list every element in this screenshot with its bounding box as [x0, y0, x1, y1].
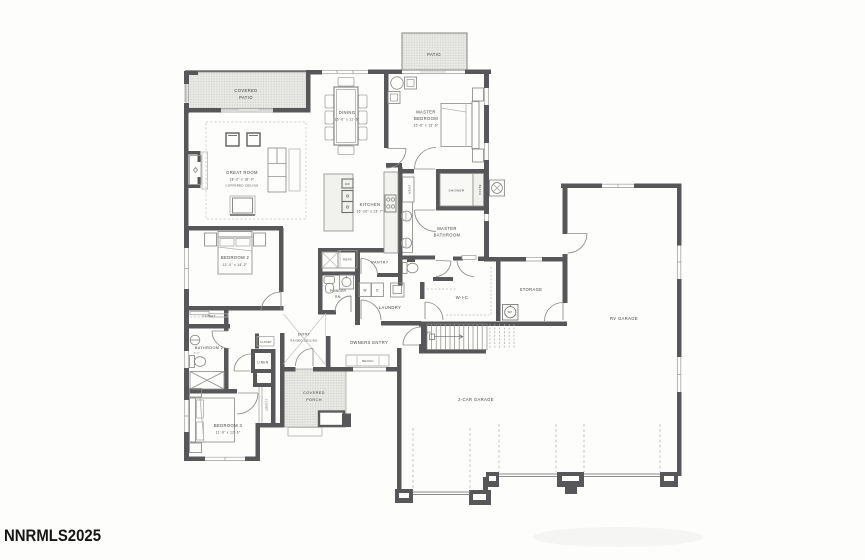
svg-text:PATIO: PATIO	[239, 95, 253, 100]
svg-text:RAISED CEILING: RAISED CEILING	[290, 339, 317, 343]
svg-text:11'-6" x 12'-6": 11'-6" x 12'-6"	[216, 431, 241, 435]
svg-text:PATIO: PATIO	[427, 52, 441, 57]
svg-text:DINING: DINING	[339, 110, 356, 115]
svg-text:MASTER: MASTER	[416, 110, 436, 115]
svg-text:KITCHEN: KITCHEN	[360, 202, 381, 207]
svg-text:W: W	[363, 289, 366, 293]
svg-text:18'-2" x 18'-0": 18'-2" x 18'-0"	[230, 178, 255, 182]
svg-text:ENTRY: ENTRY	[298, 333, 311, 337]
svg-text:CLOSET: CLOSET	[202, 314, 215, 318]
svg-text:LINEN: LINEN	[408, 185, 412, 194]
svg-text:D: D	[376, 289, 379, 293]
svg-text:RV GARAGE: RV GARAGE	[610, 316, 638, 321]
svg-text:COVERED: COVERED	[303, 390, 325, 395]
svg-text:BATHROOM 2: BATHROOM 2	[195, 346, 223, 350]
svg-text:PANTRY: PANTRY	[371, 261, 388, 265]
svg-text:15'-6" x 13'-6": 15'-6" x 13'-6"	[414, 124, 439, 128]
svg-text:CLOSET: CLOSET	[260, 341, 272, 344]
svg-text:W-I-C: W-I-C	[456, 295, 469, 300]
svg-text:COVERED: COVERED	[234, 88, 257, 93]
svg-text:12'-0" x 14'-2": 12'-0" x 14'-2"	[223, 263, 248, 267]
svg-text:PORCH: PORCH	[306, 397, 322, 402]
svg-text:CLOSET: CLOSET	[265, 399, 269, 412]
svg-text:GREAT ROOM: GREAT ROOM	[226, 170, 258, 175]
svg-text:LAUNDRY: LAUNDRY	[379, 305, 401, 310]
svg-text:SHOWER: SHOWER	[448, 189, 464, 193]
svg-text:LINEN: LINEN	[257, 361, 268, 365]
svg-text:2-CAR GARAGE: 2-CAR GARAGE	[458, 397, 494, 402]
svg-text:15'-6" x 11'-6": 15'-6" x 11'-6"	[335, 118, 360, 122]
svg-text:REFR: REFR	[343, 258, 352, 262]
svg-text:BENCH: BENCH	[478, 185, 482, 196]
svg-text:BEDROOM 2: BEDROOM 2	[221, 255, 250, 260]
svg-text:BENCH: BENCH	[362, 359, 374, 363]
svg-text:BEDROOM: BEDROOM	[414, 116, 438, 121]
svg-text:WH: WH	[508, 311, 513, 314]
svg-text:NNRMLS2025: NNRMLS2025	[4, 526, 101, 545]
svg-text:BATHROOM: BATHROOM	[434, 233, 461, 238]
svg-text:RM: RM	[335, 295, 341, 299]
svg-text:5'-0": 5'-0"	[194, 353, 200, 355]
svg-text:MASTER: MASTER	[437, 226, 457, 231]
svg-text:UP: UP	[426, 331, 431, 335]
svg-text:STORAGE: STORAGE	[520, 287, 543, 292]
svg-text:COFFERED CEILING: COFFERED CEILING	[226, 184, 259, 188]
svg-text:OWNERS ENTRY: OWNERS ENTRY	[350, 340, 388, 345]
svg-text:DW: DW	[345, 183, 350, 186]
svg-text:POWDER: POWDER	[330, 289, 347, 293]
svg-text:16'-10" x 13'-7": 16'-10" x 13'-7"	[357, 210, 384, 214]
svg-text:BEDROOM 3: BEDROOM 3	[214, 423, 243, 428]
